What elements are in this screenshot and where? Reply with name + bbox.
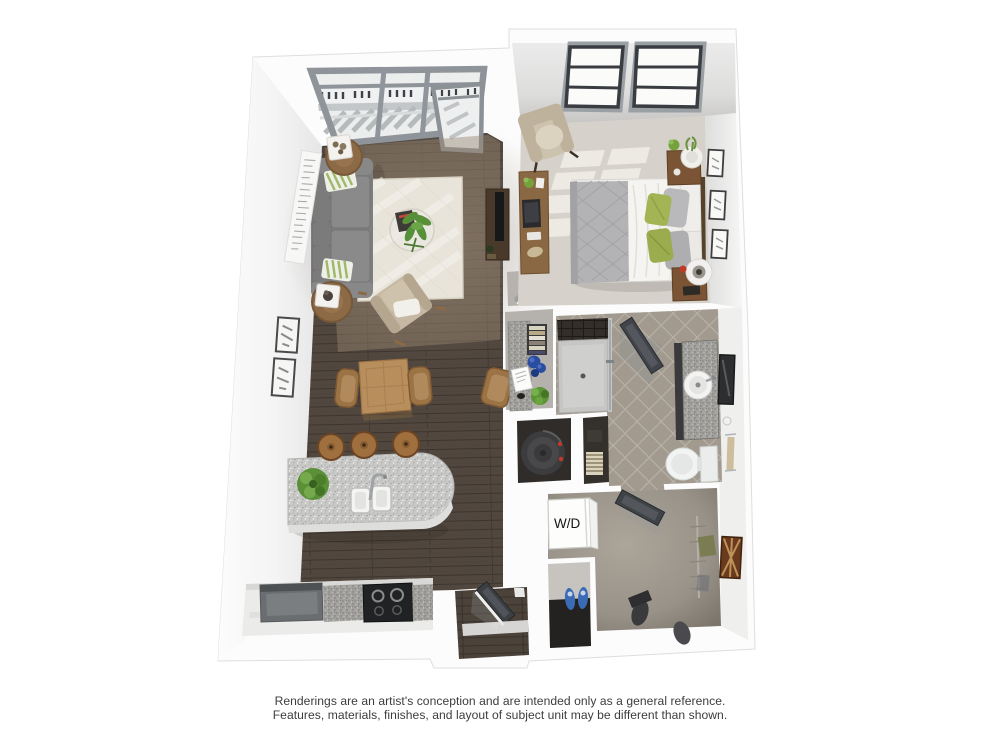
- svg-text:W/D: W/D: [554, 516, 580, 531]
